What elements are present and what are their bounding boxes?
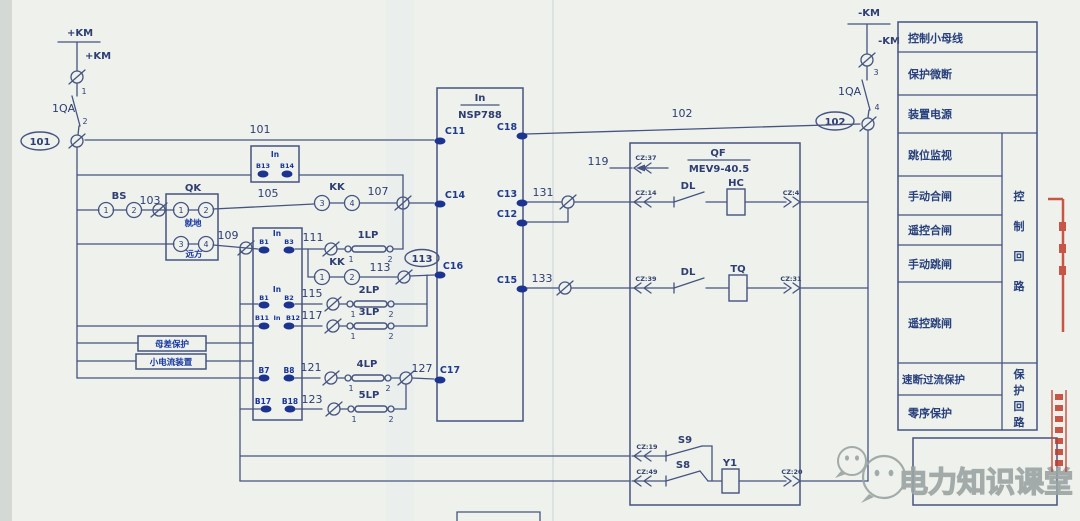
svg-text:C13: C13 bbox=[497, 189, 517, 200]
bus-protection-box: 母差保护 bbox=[138, 336, 206, 351]
s8-contact: S8 bbox=[666, 460, 700, 486]
legend-row: 手动合闸 bbox=[908, 189, 952, 203]
pole-number: 4 bbox=[874, 103, 879, 112]
scan-edge-shadow bbox=[0, 0, 12, 521]
wire-101: 101 bbox=[250, 123, 271, 136]
wire-127: 127 bbox=[412, 362, 433, 375]
svg-text:B1: B1 bbox=[259, 238, 269, 246]
wire-102: 102 bbox=[672, 107, 693, 120]
svg-text:2: 2 bbox=[203, 206, 208, 215]
minus-km-label: -KM bbox=[858, 8, 880, 19]
svg-text:1: 1 bbox=[319, 273, 324, 282]
svg-text:1: 1 bbox=[103, 206, 108, 215]
svg-text:CZ:19: CZ:19 bbox=[636, 443, 658, 451]
legend-row: 跳位监视 bbox=[908, 148, 952, 162]
protection-relay-box: In NSP788 C11 C18 C14 C13 C12 C16 C15 C1… bbox=[435, 88, 528, 421]
breaker-box: QF MEV9-40.5 CZ:37 CZ:14 DL HC bbox=[630, 143, 868, 505]
qk-label: QK bbox=[185, 183, 203, 194]
wire-121: 121 bbox=[301, 361, 322, 374]
svg-text:B18: B18 bbox=[282, 397, 298, 406]
legend-row: 遥控合闸 bbox=[908, 223, 952, 237]
svg-text:TQ: TQ bbox=[730, 264, 745, 275]
svg-text:控: 控 bbox=[1014, 189, 1025, 203]
pole-number: 3 bbox=[873, 68, 878, 77]
control-circuit-diagram: +KM +KM 1 1QA 2 101 -KM -KM 3 bbox=[0, 0, 1080, 521]
svg-text:B8: B8 bbox=[284, 366, 295, 375]
svg-text:CZ:31: CZ:31 bbox=[780, 275, 802, 283]
svg-text:C15: C15 bbox=[497, 275, 517, 286]
svg-text:Y1: Y1 bbox=[722, 458, 737, 469]
legend-group-protection: 保 护 回 路 bbox=[1013, 367, 1026, 429]
svg-text:HC: HC bbox=[728, 178, 744, 189]
s9-contact: S9 bbox=[666, 435, 702, 461]
legend-row: 控制小母线 bbox=[908, 31, 963, 45]
wire-113: 113 bbox=[370, 261, 391, 274]
svg-text:制: 制 bbox=[1014, 219, 1025, 233]
svg-text:回: 回 bbox=[1014, 249, 1025, 263]
node-102: 102 bbox=[816, 112, 854, 130]
wire-119-stub: 119 bbox=[588, 155, 633, 168]
connector-cz31: CZ:31 bbox=[780, 275, 802, 293]
close-circuit-row: CZ:14 DL HC CZ:4 bbox=[632, 178, 868, 215]
legend-row: 零序保护 bbox=[907, 406, 952, 420]
plus-km-label: +KM bbox=[67, 28, 93, 39]
bottom-partial-box bbox=[457, 512, 540, 521]
wire-133: 133 bbox=[532, 272, 553, 285]
wire-123: 123 bbox=[302, 393, 323, 406]
link-name: 3LP bbox=[359, 307, 380, 318]
svg-text:3: 3 bbox=[319, 199, 324, 208]
wire-109: 109 bbox=[218, 229, 239, 242]
rating-label: In bbox=[271, 150, 279, 159]
svg-text:DL: DL bbox=[681, 181, 696, 192]
mode-remote-label: 远方 bbox=[185, 249, 203, 260]
wechat-icon bbox=[835, 447, 905, 503]
legend-row: 手动跳闸 bbox=[908, 257, 952, 271]
svg-text:护: 护 bbox=[1014, 383, 1025, 397]
breaker-model: MEV9-40.5 bbox=[689, 164, 749, 175]
io-terminal-box: 109 In B1 B3 In B1 B2 B11 In B12 B7 B8 B… bbox=[213, 228, 322, 420]
dl-aux-contact: DL bbox=[674, 181, 704, 207]
kk-label: KK bbox=[329, 182, 346, 193]
svg-text:B12: B12 bbox=[286, 314, 300, 322]
wire-115: 115 bbox=[302, 287, 323, 300]
svg-text:2: 2 bbox=[349, 273, 354, 282]
link-name: 5LP bbox=[359, 390, 380, 401]
svg-text:C11: C11 bbox=[445, 126, 465, 137]
watermark: 电力知识课堂 bbox=[835, 447, 1073, 503]
svg-text:路: 路 bbox=[1014, 279, 1026, 293]
terminal-b14: B14 bbox=[280, 162, 294, 170]
trip-circuit-row: CZ:39 DL TQ CZ:31 bbox=[632, 264, 868, 301]
wire-107: 107 bbox=[368, 185, 389, 198]
relay-rating: In bbox=[475, 93, 486, 104]
legend-table: 控制小母线 保护微断 装置电源 跳位监视 手动合闸 遥控合闸 手动跳闸 遥控跳闸… bbox=[898, 22, 1037, 430]
svg-text:B1: B1 bbox=[259, 294, 269, 302]
wire-131: 131 bbox=[533, 186, 554, 199]
svg-text:保: 保 bbox=[1013, 367, 1026, 381]
switch-label: 1QA bbox=[838, 85, 862, 98]
trip-coil: TQ bbox=[729, 264, 747, 301]
terminal-symbol bbox=[69, 70, 85, 84]
svg-text:3: 3 bbox=[178, 240, 183, 249]
legend-row: 装置电源 bbox=[907, 107, 952, 121]
svg-text:C18: C18 bbox=[497, 122, 518, 133]
wire-111: 111 bbox=[303, 231, 324, 244]
svg-text:DL: DL bbox=[681, 267, 696, 278]
mode-local-label: 就地 bbox=[184, 218, 202, 229]
svg-text:CZ:20: CZ:20 bbox=[781, 468, 803, 476]
legend-row: 保护微断 bbox=[907, 67, 952, 81]
svg-text:B3: B3 bbox=[284, 238, 293, 246]
terminal-symbol bbox=[860, 117, 876, 131]
svg-text:4: 4 bbox=[203, 240, 208, 249]
breaker-name: QF bbox=[710, 148, 725, 159]
right-bus: -KM -KM 3 1QA 4 102 bbox=[816, 8, 900, 481]
small-current-label: 小电流装置 bbox=[149, 357, 193, 368]
legend-row: 遥控跳闸 bbox=[908, 316, 952, 330]
terminal-b13: B13 bbox=[256, 162, 270, 170]
svg-text:CZ:14: CZ:14 bbox=[635, 189, 657, 197]
svg-text:4: 4 bbox=[349, 199, 354, 208]
relay-model: NSP788 bbox=[458, 110, 502, 121]
svg-text:1: 1 bbox=[351, 415, 356, 424]
closing-coil: HC bbox=[727, 178, 745, 215]
svg-text:B7: B7 bbox=[259, 366, 270, 375]
svg-text:B17: B17 bbox=[255, 397, 271, 406]
knife-switch-1qa: 1QA bbox=[838, 80, 870, 110]
svg-text:路: 路 bbox=[1014, 415, 1026, 429]
dl-aux-contact: DL bbox=[674, 267, 704, 293]
wire-117: 117 bbox=[302, 309, 323, 322]
y1-coil: Y1 bbox=[722, 458, 739, 493]
bus-protection-label: 母差保护 bbox=[155, 339, 190, 350]
left-bus: +KM +KM 1 1QA 2 101 bbox=[21, 28, 111, 150]
minus-km-tap-label: -KM bbox=[878, 36, 900, 47]
connector-cz37: CZ:37 bbox=[634, 154, 668, 173]
bs-label: BS bbox=[112, 191, 127, 202]
aux-circuit-rows: CZ:19 S9 CZ:49 S8 Y1 bbox=[632, 435, 868, 493]
svg-text:CZ:4: CZ:4 bbox=[783, 189, 800, 197]
svg-text:回: 回 bbox=[1014, 399, 1025, 413]
svg-text:102: 102 bbox=[825, 117, 846, 128]
trip-command-wire: 133 bbox=[527, 272, 632, 295]
svg-text:In: In bbox=[273, 314, 280, 322]
svg-text:CZ:49: CZ:49 bbox=[636, 468, 658, 476]
svg-text:S8: S8 bbox=[676, 460, 690, 471]
terminal-symbol bbox=[859, 53, 875, 67]
svg-text:101: 101 bbox=[30, 137, 51, 148]
svg-text:In: In bbox=[273, 229, 281, 238]
svg-text:CZ:39: CZ:39 bbox=[635, 275, 657, 283]
svg-text:1: 1 bbox=[350, 310, 355, 319]
switch-label: 1QA bbox=[52, 102, 76, 115]
svg-text:2: 2 bbox=[385, 384, 390, 393]
pole-number: 2 bbox=[82, 117, 87, 126]
link-name: 4LP bbox=[357, 359, 378, 370]
svg-text:2: 2 bbox=[388, 332, 393, 341]
svg-text:CZ:37: CZ:37 bbox=[635, 154, 656, 162]
svg-text:1: 1 bbox=[178, 206, 183, 215]
node-101: 101 bbox=[21, 132, 59, 150]
svg-text:2: 2 bbox=[131, 206, 136, 215]
kk-label: KK bbox=[329, 257, 346, 268]
legend-row: 速断过流保护 bbox=[902, 373, 965, 386]
legend-group-control: 控 制 回 路 bbox=[1014, 189, 1026, 293]
svg-text:C12: C12 bbox=[497, 209, 517, 220]
wire-103: 103 bbox=[140, 194, 161, 207]
terminal-symbol bbox=[238, 241, 254, 255]
plus-km-tap-label: +KM bbox=[85, 51, 111, 62]
small-current-box: 小电流装置 bbox=[136, 354, 206, 369]
svg-text:2: 2 bbox=[388, 415, 393, 424]
svg-text:S9: S9 bbox=[678, 435, 692, 446]
wire-105: 105 bbox=[258, 187, 279, 200]
svg-text:C16: C16 bbox=[443, 261, 464, 272]
svg-text:B2: B2 bbox=[284, 294, 293, 302]
svg-text:1: 1 bbox=[350, 332, 355, 341]
svg-text:2: 2 bbox=[388, 310, 393, 319]
svg-text:113: 113 bbox=[412, 254, 433, 265]
connector-cz4: CZ:4 bbox=[783, 189, 800, 207]
svg-text:C17: C17 bbox=[440, 365, 460, 376]
terminal-symbol bbox=[69, 134, 85, 148]
watermark-text: 电力知识课堂 bbox=[899, 465, 1073, 499]
bs-switch: BS 1 2 103 bbox=[99, 191, 175, 218]
link-name: 1LP bbox=[358, 230, 379, 241]
schematic-scan: +KM +KM 1 1QA 2 101 -KM -KM 3 bbox=[0, 0, 1080, 521]
wire-119: 119 bbox=[588, 155, 609, 168]
red-stamp bbox=[1048, 199, 1066, 472]
svg-text:B11: B11 bbox=[255, 314, 269, 322]
svg-text:1: 1 bbox=[348, 255, 353, 264]
close-command-wire: 131 bbox=[527, 186, 632, 222]
knife-switch-1qa: 1QA bbox=[52, 96, 80, 126]
svg-text:1: 1 bbox=[348, 384, 353, 393]
pole-number: 1 bbox=[81, 87, 86, 96]
svg-text:In: In bbox=[273, 285, 281, 294]
qk-switch: QK 1 2 就地 3 4 远方 bbox=[166, 183, 218, 260]
link-name: 2LP bbox=[359, 285, 380, 296]
svg-text:C14: C14 bbox=[445, 190, 466, 201]
